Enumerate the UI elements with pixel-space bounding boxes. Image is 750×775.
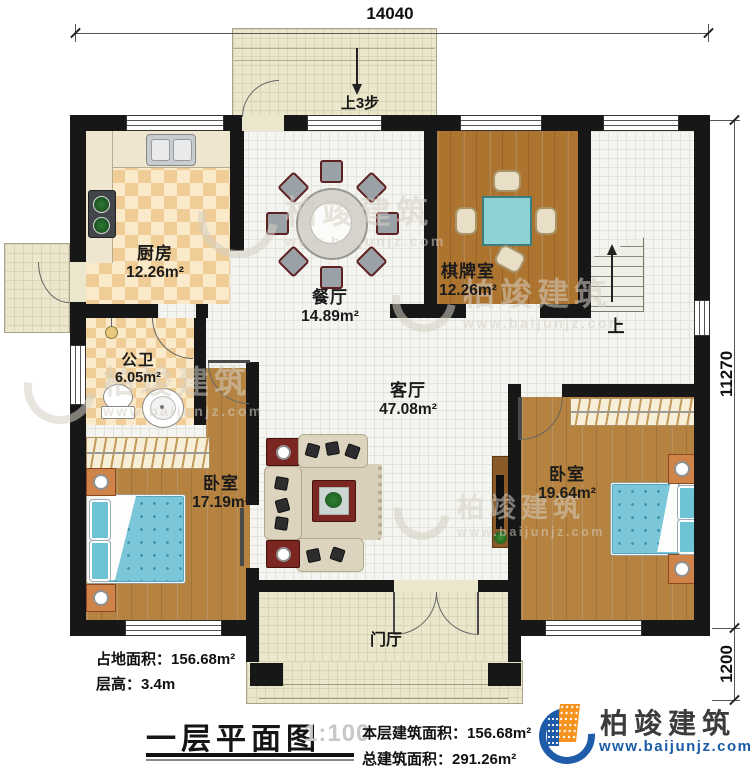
dimension-right-main: 11270 [717, 344, 737, 404]
site-area-label: 占地面积： [96, 651, 171, 668]
burner [93, 217, 110, 234]
table-lamp [674, 561, 690, 577]
sofa-pillow [274, 516, 289, 531]
stove [88, 190, 116, 238]
total-area-note: 总建筑面积：291.26m² [362, 748, 516, 769]
window-kitchen [126, 115, 224, 131]
dining-chair [320, 266, 343, 289]
room-label-dining: 餐厅 14.89m² [270, 288, 390, 326]
room-label-bath: 公卫 6.05m² [88, 352, 188, 387]
wall-foyer-right [508, 620, 521, 662]
dining-chair [320, 160, 343, 183]
brand-name: 柏竣建筑 [600, 702, 736, 742]
site-area-note: 占地面积：156.68m² [96, 648, 235, 669]
terrace-steps-label: 上3步 [312, 92, 408, 113]
nightstand [86, 468, 116, 496]
terrace-band [232, 60, 435, 61]
pillow [90, 500, 110, 540]
toilet-tank [101, 406, 135, 419]
window-bedroom-right [545, 620, 642, 636]
storey-height-note: 层高：3.4m [96, 673, 175, 694]
wardrobe-left [86, 437, 210, 469]
plant [325, 492, 342, 508]
table-lamp [93, 590, 109, 606]
window-chess-room [460, 115, 542, 131]
sofa-pillow [344, 443, 361, 460]
site-area-value: 156.68m² [171, 651, 235, 668]
total-area-label: 总建筑面积： [362, 751, 452, 768]
sofa-top [298, 434, 368, 468]
wall-bedroom-right-top [562, 384, 694, 397]
door-opening-foyer [394, 580, 478, 592]
floor-area-label: 本层建筑面积： [362, 725, 467, 742]
brand-website: www.baijunjz.com [599, 738, 750, 755]
wall-exterior-right [694, 115, 710, 636]
window-stair-hall [603, 115, 679, 131]
logo-building-orange [556, 704, 580, 742]
kitchen-sink [146, 134, 196, 166]
window-stair-hall-right [694, 300, 710, 336]
lamp-cord [111, 318, 112, 327]
side-table [266, 438, 300, 466]
side-table [266, 540, 300, 568]
brand-logo-icon [538, 700, 594, 760]
door-leaf-bedroom-left [240, 508, 244, 566]
coffee-table [312, 480, 356, 522]
sink-basin [151, 139, 170, 161]
room-label-living: 客厅 47.08m² [348, 381, 468, 419]
chess-chair [493, 170, 521, 192]
table-lamp [93, 474, 109, 490]
wardrobe-right [570, 398, 696, 426]
total-area-value: 291.26m² [452, 751, 516, 768]
stairs-arrow-line [611, 252, 613, 302]
window-dining [307, 115, 382, 131]
tv [496, 475, 504, 529]
title-underline [146, 753, 354, 757]
table-lamp [276, 547, 291, 562]
nightstand [668, 454, 696, 484]
porch-column [250, 663, 283, 686]
porch-column [488, 663, 521, 686]
mahjong-table [482, 196, 532, 246]
dimension-line-top [75, 33, 709, 34]
floor-area-value: 156.68m² [467, 725, 531, 742]
room-label-chess: 棋牌室 12.26m² [408, 262, 528, 300]
porch-step-line [259, 698, 508, 699]
foyer-label: 门厅 [336, 626, 436, 650]
window-bathroom [70, 345, 86, 405]
nightstand [86, 584, 116, 612]
plan-title: 一层平面图 [146, 714, 321, 758]
terrace-arrow-line [356, 48, 358, 84]
porch-step-line [259, 684, 508, 685]
chess-chair [535, 207, 557, 235]
sofa-pillow [305, 443, 321, 459]
basin-drain [160, 405, 164, 409]
room-label-bedroom-right: 卧室 19.64m² [507, 465, 627, 503]
room-label-kitchen: 厨房 12.26m² [95, 244, 215, 282]
chess-chair [455, 207, 477, 235]
dining-chair [376, 212, 399, 235]
wall-foyer-top-left [259, 580, 394, 592]
wall-living-bedroom-left-lower [246, 568, 259, 662]
wall-kitchen-south [86, 304, 158, 318]
stairs-arrow-head [607, 244, 617, 255]
stairs-up-label: 上 [596, 312, 636, 337]
plant [494, 531, 507, 544]
logo-building-blue [547, 716, 559, 746]
wall-kitchen-right [230, 131, 244, 251]
wall-bath-right [194, 318, 206, 425]
door-opening-terrace [242, 115, 284, 131]
floor-area-note: 本层建筑面积：156.68m² [362, 722, 531, 743]
door-opening-side-porch [70, 262, 86, 302]
dimension-right-lower: 1200 [717, 640, 737, 688]
nightstand [668, 554, 696, 584]
title-underline-shadow [146, 759, 354, 761]
storey-height-label: 层高： [96, 676, 141, 693]
sofa-pillow [306, 548, 321, 563]
room-label-bedroom-left: 卧室 17.19m² [161, 474, 281, 512]
pillow [90, 541, 110, 581]
window-bedroom-left [125, 620, 222, 636]
dimension-top: 14040 [330, 4, 450, 24]
pendant-lamp [105, 326, 118, 339]
wall-stair-hall-left [578, 131, 591, 318]
wall-kitchen-south-stub [196, 304, 208, 318]
wall-bedroom-right-top-stub [508, 384, 518, 397]
wall-foyer-top-right [478, 580, 508, 592]
sofa-pillow [329, 546, 345, 562]
dimension-line-right [734, 120, 735, 700]
terrace-band [232, 48, 435, 49]
sofa-bottom [296, 538, 364, 572]
dining-table-top [310, 202, 352, 244]
sofa-pillow [325, 441, 340, 456]
floor-plan: 14040 11270 1200 上3步 [0, 0, 750, 775]
plan-scale: 1:100 [304, 720, 370, 748]
burner [93, 196, 110, 213]
sink-basin [173, 139, 192, 161]
table-lamp [276, 445, 291, 460]
dining-chair [266, 212, 289, 235]
table-lamp [674, 461, 690, 477]
storey-height-value: 3.4m [141, 676, 175, 693]
extension-line [712, 700, 740, 701]
extension-line [712, 628, 740, 629]
